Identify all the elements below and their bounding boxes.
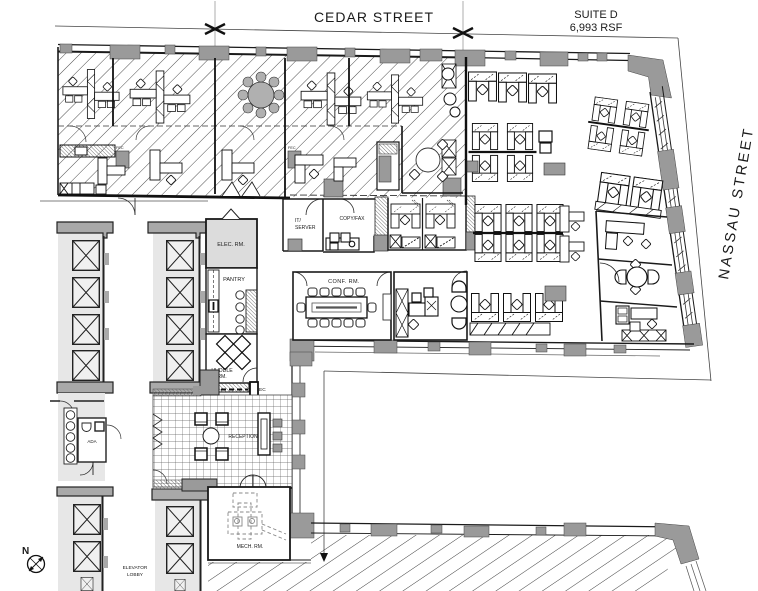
svg-text:ADA: ADA xyxy=(87,439,96,444)
svg-text:CEDAR STREET: CEDAR STREET xyxy=(314,9,434,25)
svg-text:CONF. RM.: CONF. RM. xyxy=(328,279,360,285)
svg-text:PANTRY: PANTRY xyxy=(223,277,245,283)
svg-text:SERVER: SERVER xyxy=(295,225,316,231)
svg-text:ELEC. RM.: ELEC. RM. xyxy=(217,242,245,248)
svg-text:ELEVATOR: ELEVATOR xyxy=(123,565,148,571)
svg-text:6,993 RSF: 6,993 RSF xyxy=(570,22,623,34)
svg-text:LOBBY: LOBBY xyxy=(127,572,144,578)
svg-text:EC: EC xyxy=(259,387,266,393)
svg-text:IT/: IT/ xyxy=(295,218,301,224)
svg-text:RECEPTION: RECEPTION xyxy=(228,434,258,440)
svg-text:COPY/FAX: COPY/FAX xyxy=(339,216,365,222)
svg-text:SUITE D: SUITE D xyxy=(574,9,617,21)
svg-text:N: N xyxy=(22,546,29,557)
svg-text:FEC: FEC xyxy=(288,146,296,150)
svg-text:MECH. RM.: MECH. RM. xyxy=(237,544,264,550)
svg-text:FEC: FEC xyxy=(116,146,124,150)
